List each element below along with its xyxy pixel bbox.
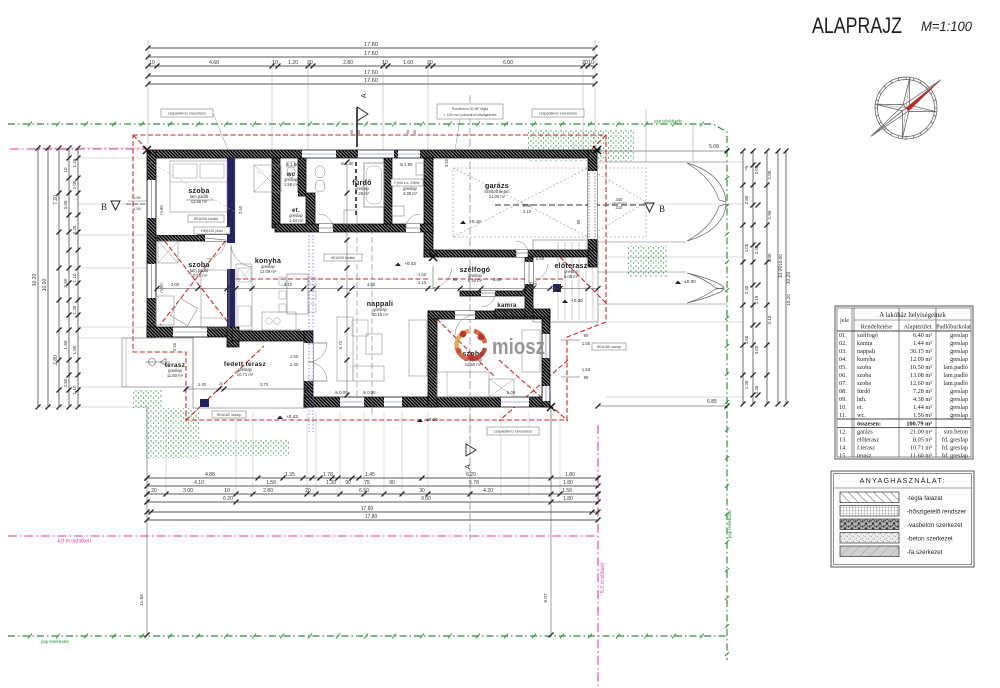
- svg-text:90: 90: [350, 130, 354, 134]
- svg-text:210: 210: [616, 205, 624, 210]
- svg-text:11.60 m²: 11.60 m²: [910, 453, 932, 460]
- svg-text:m.0.00: m.0.00: [335, 390, 348, 395]
- svg-text:2.05: 2.05: [767, 170, 772, 179]
- svg-text:75: 75: [744, 165, 749, 170]
- svg-text:1.35: 1.35: [744, 380, 749, 389]
- svg-text:7.20: 7.20: [53, 195, 59, 205]
- svg-text:1.35: 1.35: [285, 472, 295, 478]
- svg-text:B: B: [101, 202, 107, 212]
- svg-text:90: 90: [389, 480, 395, 486]
- svg-text:10.20: 10.20: [786, 294, 791, 306]
- svg-text:M=1:100: M=1:100: [921, 19, 972, 34]
- svg-text:60: 60: [413, 130, 417, 134]
- svg-text:m.0.90: m.0.90: [363, 390, 376, 395]
- svg-text:1.50: 1.50: [266, 480, 276, 486]
- svg-text:03.: 03.: [839, 348, 847, 355]
- svg-text:szélfogó: szélfogó: [857, 332, 878, 339]
- svg-text:előterasz: előterasz: [857, 437, 879, 444]
- svg-text:8.05 m²: 8.05 m²: [564, 274, 579, 279]
- svg-text:1.56 m²: 1.56 m²: [913, 412, 932, 419]
- svg-text:1.60: 1.60: [403, 60, 413, 66]
- svg-text:greslap: greslap: [950, 356, 968, 363]
- svg-text:1.50: 1.50: [562, 488, 572, 494]
- svg-text:jogi telekhatár: jogi telekhatár: [653, 119, 683, 124]
- svg-text:1.20: 1.20: [288, 60, 298, 66]
- svg-text:2.40: 2.40: [290, 362, 299, 367]
- svg-text:csapadékvíz elvezetése: csapadékvíz elvezetése: [168, 111, 206, 115]
- svg-text:csapadékvíz elvezetése: csapadékvíz elvezetése: [539, 111, 577, 115]
- svg-text:17.60: 17.60: [364, 51, 378, 57]
- svg-text:szoba: szoba: [857, 380, 871, 387]
- svg-text:2.00: 2.00: [72, 180, 77, 189]
- svg-text:1.10: 1.10: [72, 385, 77, 394]
- svg-text:szoba: szoba: [857, 372, 871, 379]
- svg-text:12.: 12.: [839, 429, 847, 436]
- svg-text:1.00: 1.00: [536, 250, 545, 255]
- svg-text:greslap: greslap: [950, 404, 968, 411]
- svg-text:1.80: 1.80: [563, 496, 573, 502]
- svg-text:B: B: [659, 204, 665, 214]
- svg-text:konyha: konyha: [857, 356, 875, 363]
- svg-text:A lakóház helyiségeinek: A lakóház helyiségeinek: [879, 312, 946, 319]
- svg-text:garázs: garázs: [857, 429, 873, 436]
- svg-text:szoba: szoba: [857, 364, 871, 371]
- svg-text:17.80: 17.80: [364, 42, 378, 48]
- svg-text:fd. greslap: fd. greslap: [942, 445, 968, 452]
- svg-text:lam.padló: lam.padló: [943, 372, 968, 379]
- svg-text:m.90: m.90: [159, 205, 164, 215]
- svg-text:greslap: greslap: [950, 340, 968, 347]
- svg-text:-tégla falazat: -tégla falazat: [907, 495, 943, 502]
- svg-text:5.08: 5.08: [709, 144, 719, 150]
- svg-text:100.79 m²: 100.79 m²: [906, 420, 932, 427]
- svg-text:09.: 09.: [839, 396, 847, 403]
- svg-text:lam.padló: lam.padló: [943, 364, 968, 371]
- svg-text:6.00: 6.00: [503, 60, 513, 66]
- svg-text:13.08 m²: 13.08 m²: [910, 372, 932, 379]
- svg-text:összesen:: összesen:: [857, 420, 881, 427]
- svg-text:2.80: 2.80: [53, 355, 59, 365]
- svg-text:3.50: 3.50: [444, 158, 449, 167]
- svg-text:-fa szerkezet: -fa szerkezet: [907, 549, 943, 556]
- svg-text:3.10: 3.10: [284, 282, 293, 287]
- svg-text:1.00: 1.00: [744, 243, 749, 252]
- svg-text:-beton szerkezet: -beton szerkezet: [907, 536, 953, 543]
- svg-text:75: 75: [364, 480, 370, 486]
- svg-text:1.30: 1.30: [326, 480, 336, 486]
- svg-text:1.56 m²: 1.56 m²: [284, 182, 299, 187]
- svg-text:fd. greslap: fd. greslap: [942, 453, 968, 460]
- svg-text:8.05 m²: 8.05 m²: [913, 437, 932, 444]
- svg-text:±0.00: ±0.00: [684, 279, 696, 284]
- svg-text:2.60: 2.60: [238, 205, 243, 214]
- svg-text:12.09 m²: 12.09 m²: [910, 356, 932, 363]
- svg-text:1.60: 1.60: [493, 277, 502, 282]
- svg-text:1.25: 1.25: [72, 305, 77, 314]
- svg-text:10.00: 10.00: [42, 279, 48, 292]
- svg-text:6.85: 6.85: [707, 399, 717, 405]
- svg-text:6.40 m²: 6.40 m²: [468, 278, 483, 283]
- svg-text:HEA200 kiváltó: HEA200 kiváltó: [331, 256, 356, 260]
- svg-text:1.50: 1.50: [290, 354, 299, 359]
- svg-text:1.10: 1.10: [72, 273, 77, 282]
- svg-text:Porotherm 30 NF tégla: Porotherm 30 NF tégla: [452, 107, 488, 111]
- svg-text:2.80: 2.80: [263, 488, 273, 494]
- svg-text:2.50: 2.50: [63, 378, 68, 387]
- svg-text:10.00: 10.00: [778, 266, 784, 279]
- svg-text:greslap: greslap: [950, 388, 968, 395]
- svg-text:11.60 m²: 11.60 m²: [167, 373, 184, 378]
- svg-text:1.44 m²: 1.44 m²: [913, 340, 932, 347]
- svg-text:m.90: m.90: [433, 334, 438, 344]
- svg-text:2.80: 2.80: [343, 60, 353, 66]
- svg-text:3.90: 3.90: [296, 328, 301, 337]
- svg-text:90: 90: [576, 219, 581, 224]
- svg-text:HEA180 oszlop: HEA180 oszlop: [597, 345, 622, 349]
- svg-text:13.: 13.: [839, 437, 847, 444]
- svg-text:10: 10: [63, 167, 68, 173]
- svg-text:4.10: 4.10: [194, 480, 204, 486]
- svg-text:17.60: 17.60: [364, 78, 378, 84]
- svg-text:m.90: m.90: [159, 283, 164, 293]
- svg-text:5.78: 5.78: [469, 480, 479, 486]
- svg-text:+0.43: +0.43: [286, 414, 298, 419]
- svg-text:10.50 m²: 10.50 m²: [191, 273, 208, 278]
- svg-text:2.40: 2.40: [172, 342, 177, 351]
- svg-text:3.00: 3.00: [183, 488, 193, 494]
- svg-text:3.00: 3.00: [754, 345, 759, 354]
- svg-text:+ 100 mm polisztirol hőszigete: + 100 mm polisztirol hőszigetelés: [443, 113, 496, 117]
- svg-text:1.45: 1.45: [365, 472, 375, 478]
- svg-text:07.: 07.: [839, 380, 847, 387]
- svg-text:10.: 10.: [839, 404, 847, 411]
- svg-text:m.1.80: m.1.80: [286, 162, 299, 167]
- svg-text:11.84: 11.84: [139, 594, 145, 606]
- svg-text:30.15 m²: 30.15 m²: [910, 348, 932, 355]
- svg-text:HEA200 kiváltó: HEA200 kiváltó: [194, 217, 219, 221]
- svg-text:4.88: 4.88: [205, 472, 215, 478]
- svg-text:3.50: 3.50: [63, 278, 68, 287]
- svg-text:±0.00: ±0.00: [426, 417, 438, 422]
- svg-text:1.80: 1.80: [563, 480, 573, 486]
- svg-text:4.38 m²: 4.38 m²: [403, 191, 418, 196]
- svg-text:4.50: 4.50: [367, 282, 376, 287]
- svg-text:nappali: nappali: [857, 348, 875, 355]
- svg-text:7.28 m²: 7.28 m²: [355, 191, 370, 196]
- svg-text:1.44 m²: 1.44 m²: [289, 218, 304, 223]
- svg-text:90: 90: [345, 480, 351, 486]
- svg-text:2.90: 2.90: [767, 210, 772, 219]
- svg-text:2.10: 2.10: [418, 280, 427, 285]
- svg-text:9.07: 9.07: [543, 593, 549, 603]
- svg-text:21.00 m²: 21.00 m²: [489, 194, 506, 199]
- svg-text:+0.20: +0.20: [571, 298, 583, 303]
- svg-text:10.50 m²: 10.50 m²: [910, 364, 932, 371]
- svg-text:m.1.80: m.1.80: [400, 162, 413, 167]
- svg-text:7.28 m²: 7.28 m²: [913, 388, 932, 395]
- svg-text:60: 60: [357, 130, 361, 134]
- svg-text:04.: 04.: [839, 356, 847, 363]
- svg-text:20: 20: [151, 488, 157, 494]
- svg-text:1.44 m²: 1.44 m²: [913, 404, 932, 411]
- svg-text:30: 30: [419, 488, 425, 494]
- svg-text:fürdő: fürdő: [857, 388, 870, 395]
- svg-text:1.50: 1.50: [133, 207, 140, 211]
- svg-text:3.00: 3.00: [171, 282, 180, 287]
- svg-text:1.00: 1.00: [418, 272, 427, 277]
- svg-text:21.00 m²: 21.00 m²: [910, 429, 932, 436]
- svg-text:90: 90: [453, 277, 458, 282]
- svg-text:10.71 m²: 10.71 m²: [910, 445, 932, 452]
- svg-text:2.30: 2.30: [744, 285, 749, 294]
- svg-text:30.15 m²: 30.15 m²: [372, 312, 389, 317]
- svg-text:08.: 08.: [839, 388, 847, 395]
- svg-text:17.60: 17.60: [361, 506, 374, 512]
- svg-text:Rendeltetése: Rendeltetése: [861, 324, 893, 331]
- svg-text:10: 10: [272, 60, 278, 66]
- svg-text:greslap: greslap: [950, 412, 968, 419]
- svg-text:10: 10: [224, 488, 230, 494]
- svg-text:1.80: 1.80: [565, 472, 575, 478]
- svg-text:HEA130 pillér: HEA130 pillér: [201, 229, 224, 233]
- svg-text:4.60: 4.60: [209, 60, 219, 66]
- svg-text:A: A: [465, 464, 472, 469]
- svg-text:hth.: hth.: [857, 396, 867, 403]
- svg-text:10: 10: [588, 60, 594, 66]
- svg-text:17.60: 17.60: [364, 70, 378, 76]
- svg-text:3.70: 3.70: [260, 382, 269, 387]
- svg-text:2.80: 2.80: [744, 195, 749, 204]
- svg-text:f.terasz: f.terasz: [857, 445, 875, 452]
- svg-text:10.00: 10.00: [778, 254, 783, 266]
- svg-text:15.: 15.: [839, 453, 847, 460]
- svg-text:2.10: 2.10: [523, 209, 532, 214]
- svg-text:+0.18: +0.18: [469, 219, 481, 224]
- svg-text:jogi telekhatár: jogi telekhatár: [40, 639, 70, 644]
- svg-text:F.jelű k.k. 20kW: F.jelű k.k. 20kW: [394, 181, 420, 185]
- svg-text:4.0 m oldalkert: 4.0 m oldalkert: [57, 539, 92, 545]
- svg-text:csapadékvíz elvezetése: csapadékvíz elvezetése: [494, 429, 532, 433]
- svg-text:12.09 m²: 12.09 m²: [260, 269, 277, 274]
- svg-text:wc.: wc.: [857, 412, 866, 419]
- svg-text:06.: 06.: [839, 372, 847, 379]
- svg-text:12.60 m²: 12.60 m²: [910, 380, 932, 387]
- svg-text:1.78: 1.78: [323, 472, 333, 478]
- svg-text:A: A: [361, 93, 368, 98]
- svg-text:sim.beton: sim.beton: [944, 429, 968, 436]
- svg-text:jele: jele: [839, 317, 849, 324]
- svg-text:6.70: 6.70: [338, 340, 343, 349]
- svg-text:2.40: 2.40: [536, 256, 545, 261]
- svg-text:4.20: 4.20: [483, 488, 493, 494]
- svg-text:+0.43: +0.43: [404, 261, 416, 266]
- svg-text:02.: 02.: [839, 340, 847, 347]
- svg-text:fd. greslap: fd. greslap: [942, 437, 968, 444]
- svg-text:20: 20: [219, 382, 223, 386]
- svg-text:6.20: 6.20: [223, 496, 233, 502]
- svg-text:3.00: 3.00: [63, 200, 68, 209]
- svg-text:Padlóburkolat: Padlóburkolat: [936, 324, 971, 331]
- svg-text:10.20: 10.20: [32, 274, 38, 287]
- svg-text:240: 240: [616, 197, 624, 202]
- svg-text:17.80: 17.80: [365, 514, 378, 520]
- svg-text:5.0 m előkert: 5.0 m előkert: [600, 562, 606, 593]
- svg-text:1.44 m²: 1.44 m²: [500, 313, 515, 318]
- svg-text:6.20: 6.20: [466, 472, 476, 478]
- svg-text:11.: 11.: [839, 412, 847, 419]
- svg-text:9.60: 9.60: [421, 496, 431, 502]
- svg-text:greslap: greslap: [950, 348, 968, 355]
- svg-text:1.50: 1.50: [63, 340, 68, 349]
- svg-text:miosz: miosz: [492, 334, 545, 359]
- svg-text:greslap: greslap: [950, 332, 968, 339]
- svg-text:2.70: 2.70: [529, 282, 538, 287]
- svg-text:4.38 m²: 4.38 m²: [913, 396, 932, 403]
- svg-text:14.: 14.: [839, 445, 847, 452]
- svg-text:ALAPRAJZ: ALAPRAJZ: [812, 13, 902, 38]
- svg-text:01.: 01.: [839, 332, 847, 339]
- svg-text:1.50: 1.50: [582, 367, 591, 372]
- svg-text:greslap: greslap: [950, 396, 968, 403]
- svg-text:90: 90: [406, 130, 410, 134]
- svg-text:12.60 m²: 12.60 m²: [465, 362, 482, 367]
- svg-text:terasz: terasz: [857, 453, 872, 460]
- svg-text:lam.padló: lam.padló: [943, 380, 968, 387]
- svg-text:05.: 05.: [839, 364, 847, 371]
- svg-text:ANYAGHASZNÁLAT:: ANYAGHASZNÁLAT:: [860, 476, 946, 485]
- svg-text:1.50: 1.50: [133, 196, 140, 200]
- svg-text:-vasbeton szerkezet: -vasbeton szerkezet: [907, 522, 963, 529]
- svg-text:1.50: 1.50: [72, 345, 77, 354]
- svg-text:kamra: kamra: [857, 340, 873, 347]
- svg-text:5.00: 5.00: [507, 390, 516, 395]
- svg-text:1.50: 1.50: [582, 341, 591, 346]
- svg-text:90: 90: [584, 375, 589, 380]
- svg-text:Alapterület: Alapterület: [904, 324, 932, 331]
- svg-text:1.40: 1.40: [198, 382, 207, 387]
- svg-text:-hőszigetelő rendszer: -hőszigetelő rendszer: [907, 509, 966, 516]
- svg-text:HEA180 oszlop: HEA180 oszlop: [217, 413, 242, 417]
- svg-text:10: 10: [149, 60, 155, 66]
- svg-text:90: 90: [584, 333, 589, 338]
- svg-text:10.71 m²: 10.71 m²: [237, 372, 254, 377]
- svg-text:2.60: 2.60: [523, 203, 532, 208]
- svg-text:10.20: 10.20: [786, 272, 792, 285]
- svg-text:4.10: 4.10: [767, 315, 772, 324]
- svg-text:6.40 m²: 6.40 m²: [913, 332, 932, 339]
- svg-text:et.: et.: [857, 404, 863, 411]
